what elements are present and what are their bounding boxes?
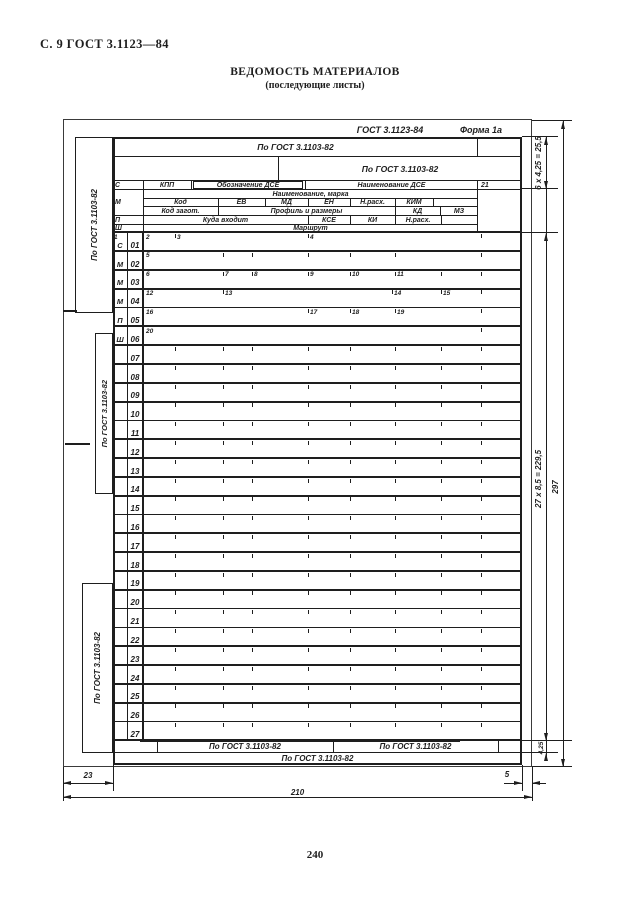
column-tick	[395, 347, 396, 351]
row-line	[113, 570, 522, 572]
column-tick	[308, 610, 309, 614]
column-tick	[481, 253, 482, 257]
column-tick	[481, 554, 482, 558]
grid-line	[278, 157, 279, 181]
column-tick	[350, 403, 351, 407]
row-line	[113, 307, 522, 309]
column-tick	[175, 366, 176, 370]
column-tick	[395, 554, 396, 558]
column-tick	[441, 479, 442, 483]
row-service-mark: М	[113, 297, 127, 307]
column-tick	[252, 385, 253, 389]
row-number: 07	[127, 354, 143, 364]
column-tick	[395, 309, 396, 313]
column-tick	[395, 516, 396, 520]
column-tick	[252, 460, 253, 464]
column-tick	[395, 686, 396, 690]
zone-number: 14	[394, 290, 401, 297]
column-tick	[223, 667, 224, 671]
column-tick	[252, 272, 253, 276]
row-line	[113, 495, 522, 497]
row-line	[113, 401, 522, 403]
row-number: 17	[127, 542, 143, 552]
column-tick	[481, 629, 482, 633]
column-tick	[223, 535, 224, 539]
column-tick	[223, 460, 224, 464]
column-tick	[392, 290, 393, 294]
column-tick	[252, 422, 253, 426]
grid-line	[498, 741, 499, 753]
footer-gost-ref-1: По ГОСТ 3.1103-82	[157, 741, 333, 753]
zone-number: 20	[146, 328, 153, 335]
column-tick	[308, 667, 309, 671]
column-tick	[223, 686, 224, 690]
column-tick	[350, 366, 351, 370]
row-number: 24	[127, 674, 143, 684]
side-gost-box-label: По ГОСТ 3.1103-82	[93, 632, 102, 704]
column-tick	[395, 403, 396, 407]
column-tick	[350, 667, 351, 671]
column-tick	[308, 629, 309, 633]
zone-number: 17	[310, 309, 317, 316]
row-service-mark: М	[113, 278, 127, 288]
row-number: 06	[127, 335, 143, 345]
column-tick	[441, 516, 442, 520]
zone-number: 1	[114, 234, 118, 241]
row-line	[113, 363, 522, 365]
grid-line	[308, 199, 309, 207]
row-number: 02	[127, 260, 143, 270]
column-tick	[395, 272, 396, 276]
zone-number: 11	[397, 271, 404, 278]
row-line	[113, 589, 522, 591]
column-tick	[350, 497, 351, 501]
column-tick	[308, 234, 309, 238]
column-tick	[252, 441, 253, 445]
row-number: 14	[127, 485, 143, 495]
row-line	[113, 382, 522, 384]
row-number: 20	[127, 598, 143, 608]
side-gost-box-label: По ГОСТ 3.1103-82	[100, 380, 109, 447]
column-tick	[481, 648, 482, 652]
column-tick	[308, 573, 309, 577]
column-tick	[395, 460, 396, 464]
dimension-arrow	[63, 781, 71, 785]
grid-line	[522, 232, 558, 233]
row-number: 18	[127, 561, 143, 571]
column-tick	[395, 573, 396, 577]
column-tick	[441, 272, 442, 276]
column-tick	[252, 648, 253, 652]
row-line	[113, 645, 522, 647]
column-tick	[441, 497, 442, 501]
column-tick	[395, 591, 396, 595]
column-tick	[350, 347, 351, 351]
row-line	[113, 514, 522, 516]
column-tick	[441, 460, 442, 464]
zone-number: 2	[146, 234, 150, 241]
column-tick	[441, 441, 442, 445]
column-tick	[395, 629, 396, 633]
column-tick	[252, 347, 253, 351]
grid-line	[113, 215, 478, 216]
dimension-arrow	[544, 181, 548, 189]
column-tick	[350, 385, 351, 389]
row-number: 27	[127, 730, 143, 740]
column-tick	[441, 347, 442, 351]
column-tick	[441, 422, 442, 426]
column-tick	[481, 497, 482, 501]
column-tick	[395, 723, 396, 727]
grid-line	[440, 207, 441, 216]
column-tick	[481, 441, 482, 445]
row-line	[113, 702, 522, 704]
column-tick	[350, 441, 351, 445]
column-tick	[441, 573, 442, 577]
grid-line	[191, 181, 192, 190]
row-number: 15	[127, 504, 143, 514]
row-number: 21	[127, 617, 143, 627]
column-tick	[481, 234, 482, 238]
column-tick	[308, 686, 309, 690]
column-tick	[395, 667, 396, 671]
column-tick	[350, 629, 351, 633]
column-tick	[175, 460, 176, 464]
row-line	[113, 532, 522, 534]
column-tick	[441, 610, 442, 614]
row-line	[113, 438, 522, 440]
row-number: 09	[127, 391, 143, 401]
column-tick	[308, 516, 309, 520]
zone-number: 9	[310, 271, 314, 278]
row-line	[113, 288, 522, 290]
column-tick	[481, 723, 482, 727]
column-tick	[481, 460, 482, 464]
addr-row-2: По ГОСТ 3.1103-82	[278, 157, 522, 181]
column-tick	[395, 648, 396, 652]
column-tick	[395, 422, 396, 426]
row-line	[113, 476, 522, 478]
column-tick	[308, 554, 309, 558]
column-tick	[308, 403, 309, 407]
column-tick	[481, 422, 482, 426]
column-tick	[223, 516, 224, 520]
row-service-mark: С	[113, 241, 127, 251]
column-tick	[308, 441, 309, 445]
row-number: 25	[127, 692, 143, 702]
column-tick	[308, 648, 309, 652]
column-tick	[441, 535, 442, 539]
column-tick	[308, 723, 309, 727]
column-tick	[481, 591, 482, 595]
column-tick	[223, 591, 224, 595]
column-tick	[308, 591, 309, 595]
column-tick	[223, 441, 224, 445]
dimension-arrow	[561, 759, 565, 767]
column-tick	[252, 723, 253, 727]
column-tick	[350, 422, 351, 426]
column-tick	[175, 667, 176, 671]
column-tick	[481, 667, 482, 671]
column-tick	[441, 366, 442, 370]
side-gost-box-1: По ГОСТ 3.1103-82	[75, 137, 113, 313]
dimension-arrow	[544, 233, 548, 241]
column-tick	[175, 554, 176, 558]
row-number: 19	[127, 579, 143, 589]
column-tick	[223, 723, 224, 727]
grid-line	[305, 181, 306, 190]
dimension-arrow	[105, 781, 113, 785]
dim-header-block: 6 х 4,25 = 25,5	[534, 128, 544, 198]
column-tick	[350, 610, 351, 614]
row-number: 11	[127, 429, 143, 439]
column-tick	[252, 573, 253, 577]
column-tick	[441, 667, 442, 671]
column-tick	[223, 347, 224, 351]
column-tick	[481, 328, 482, 332]
row-number: 08	[127, 373, 143, 383]
column-tick	[223, 629, 224, 633]
grid-line	[113, 156, 522, 157]
grid-line	[546, 137, 547, 761]
row-line	[113, 627, 522, 629]
column-tick	[395, 535, 396, 539]
column-tick	[223, 253, 224, 257]
page-number: 240	[0, 849, 630, 861]
row-service-mark: П	[113, 316, 127, 326]
column-tick	[175, 497, 176, 501]
row-line	[113, 420, 522, 422]
column-tick	[223, 422, 224, 426]
column-tick	[350, 460, 351, 464]
row-number: 12	[127, 448, 143, 458]
column-tick	[175, 234, 176, 238]
row-number: 23	[127, 655, 143, 665]
column-tick	[252, 403, 253, 407]
column-tick	[441, 385, 442, 389]
column-tick	[252, 253, 253, 257]
zone-number: 16	[146, 309, 153, 316]
column-tick	[252, 479, 253, 483]
row-number: 10	[127, 410, 143, 420]
zone-number: 10	[352, 271, 359, 278]
column-tick	[252, 497, 253, 501]
grid-line	[433, 199, 434, 207]
column-tick	[441, 403, 442, 407]
column-tick	[175, 479, 176, 483]
column-tick	[308, 535, 309, 539]
column-tick	[252, 704, 253, 708]
column-tick	[223, 272, 224, 276]
column-tick	[350, 704, 351, 708]
grid-line	[218, 199, 219, 216]
column-tick	[308, 366, 309, 370]
column-tick	[223, 385, 224, 389]
column-tick	[175, 648, 176, 652]
footer-gost-ref-3: По ГОСТ 3.1103-82	[113, 753, 522, 765]
column-tick	[350, 309, 351, 313]
column-tick	[350, 535, 351, 539]
column-tick	[395, 610, 396, 614]
column-tick	[481, 290, 482, 294]
column-tick	[175, 629, 176, 633]
column-tick	[308, 460, 309, 464]
grid-line	[113, 180, 522, 181]
column-tick	[308, 497, 309, 501]
column-tick	[175, 347, 176, 351]
dimension-arrow	[532, 781, 540, 785]
row-line	[113, 344, 522, 346]
column-tick	[395, 253, 396, 257]
row-number: 04	[127, 297, 143, 307]
row-line	[113, 457, 522, 459]
column-tick	[223, 704, 224, 708]
row-service-mark: Ш	[113, 335, 127, 345]
column-tick	[252, 591, 253, 595]
column-tick	[252, 629, 253, 633]
grid-line	[563, 121, 564, 767]
column-tick	[481, 516, 482, 520]
zone-number: 18	[352, 309, 359, 316]
row-line	[113, 683, 522, 685]
dimension-arrow	[514, 781, 522, 785]
column-tick	[350, 272, 351, 276]
row-line	[113, 664, 522, 666]
column-tick	[481, 610, 482, 614]
row-number: 01	[127, 241, 143, 251]
grid-line	[395, 199, 396, 225]
grid-line	[441, 216, 442, 225]
column-tick	[175, 516, 176, 520]
zone-number: 12	[146, 290, 153, 297]
col-oboznachenie-dse: Обозначение ДСЕ	[193, 181, 303, 189]
column-tick	[252, 366, 253, 370]
column-tick	[175, 723, 176, 727]
column-tick	[481, 272, 482, 276]
zone-number: 5	[146, 252, 150, 259]
grid-line	[350, 216, 351, 225]
row-number: 13	[127, 467, 143, 477]
row-number: 16	[127, 523, 143, 533]
column-tick	[175, 610, 176, 614]
zone-number: 6	[146, 271, 150, 278]
column-tick	[308, 479, 309, 483]
column-tick	[223, 290, 224, 294]
grid-line	[143, 181, 144, 232]
service-mark-m: М	[115, 196, 141, 210]
dim-left-margin: 23	[63, 771, 113, 781]
column-tick	[350, 479, 351, 483]
grid-line	[113, 189, 522, 190]
row-line	[113, 551, 522, 553]
column-tick	[395, 479, 396, 483]
grid-line	[350, 199, 351, 207]
row-line	[113, 325, 522, 327]
dim-footer-row: 4,25	[537, 728, 547, 768]
column-tick	[441, 723, 442, 727]
column-tick	[395, 385, 396, 389]
column-tick	[223, 366, 224, 370]
grid-line	[308, 216, 309, 225]
column-tick	[481, 686, 482, 690]
column-tick	[175, 403, 176, 407]
column-tick	[441, 704, 442, 708]
column-tick	[223, 479, 224, 483]
dim-right-margin: 5	[494, 770, 520, 780]
row-line	[113, 250, 522, 252]
column-tick	[223, 610, 224, 614]
grid-line	[477, 181, 478, 232]
row-number: 05	[127, 316, 143, 326]
column-tick	[350, 554, 351, 558]
column-tick	[308, 385, 309, 389]
column-tick	[308, 347, 309, 351]
column-tick	[481, 479, 482, 483]
side-gost-box-2: По ГОСТ 3.1103-82	[95, 333, 113, 494]
row-line	[113, 608, 522, 610]
column-tick	[350, 686, 351, 690]
dim-sheet-width: 210	[63, 788, 532, 798]
column-tick	[481, 385, 482, 389]
column-tick	[252, 667, 253, 671]
zone-number: 8	[254, 271, 258, 278]
dimension-arrow	[544, 137, 548, 145]
column-tick	[395, 704, 396, 708]
column-tick	[223, 554, 224, 558]
column-tick	[441, 290, 442, 294]
side-gost-box-label: По ГОСТ 3.1103-82	[90, 189, 99, 261]
column-tick	[481, 309, 482, 313]
column-tick	[252, 516, 253, 520]
column-tick	[175, 686, 176, 690]
column-tick	[308, 309, 309, 313]
grid-line	[113, 224, 478, 225]
column-tick	[223, 648, 224, 652]
column-tick	[441, 648, 442, 652]
column-tick	[395, 366, 396, 370]
row-number: 03	[127, 278, 143, 288]
footer-gost-ref-2: По ГОСТ 3.1103-82	[333, 741, 498, 753]
row-line	[113, 269, 522, 271]
zone-number: 7	[225, 271, 229, 278]
grid-line	[143, 206, 478, 207]
column-tick	[308, 704, 309, 708]
column-tick	[481, 704, 482, 708]
row-number: 26	[127, 711, 143, 721]
grid-line	[477, 137, 478, 157]
column-tick	[308, 253, 309, 257]
grid-line	[532, 120, 572, 121]
column-tick	[441, 591, 442, 595]
column-tick	[175, 441, 176, 445]
column-tick	[175, 422, 176, 426]
dimension-arrow	[561, 121, 565, 129]
column-tick	[223, 573, 224, 577]
side-gost-box-3: По ГОСТ 3.1103-82	[82, 583, 113, 753]
column-tick	[252, 610, 253, 614]
column-tick	[175, 573, 176, 577]
column-tick	[481, 573, 482, 577]
grid-line	[113, 231, 522, 233]
column-tick	[308, 272, 309, 276]
column-tick	[175, 591, 176, 595]
column-tick	[441, 686, 442, 690]
column-tick	[481, 535, 482, 539]
grid-line	[265, 199, 266, 207]
row-line	[113, 721, 522, 723]
zone-number: 3	[177, 234, 181, 241]
column-tick	[308, 422, 309, 426]
